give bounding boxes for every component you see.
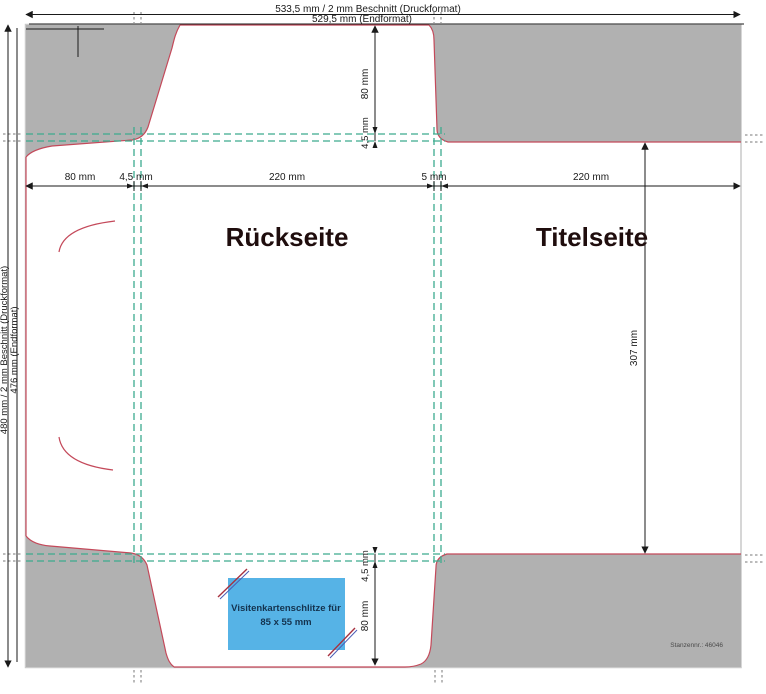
back-panel-title: Rückseite	[226, 222, 349, 252]
label-bottom-flap-crease: 4,5 mm	[360, 550, 371, 582]
waste-area-top-right	[429, 25, 741, 142]
die-template-drawing: 533,5 mm / 2 mm Beschnitt (Druckformat) …	[0, 0, 766, 694]
panel-titles: Rückseite Titelseite	[226, 222, 649, 252]
label-left-inner: 476 mm (Endformat)	[9, 306, 20, 393]
slot-label-line1: Visitenkartenschlitze für	[231, 603, 341, 614]
front-panel-title: Titelseite	[536, 222, 648, 252]
die-number-text: Stanzennr.: 46046	[670, 642, 723, 649]
label-width-220-right: 220 mm	[573, 172, 609, 183]
waste-area-bottom-right	[405, 554, 741, 667]
waste-area-top-left	[26, 25, 180, 157]
business-card-slot-area: Visitenkartenschlitze für 85 x 55 mm	[218, 569, 357, 658]
label-top-flap-height: 80 mm	[360, 69, 371, 100]
slot-label-line2: 85 x 55 mm	[260, 617, 311, 628]
cut-arc-left-bottom	[59, 437, 113, 470]
business-card-slot-box	[228, 578, 345, 650]
label-width-5: 5 mm	[422, 172, 447, 183]
label-width-4-5: 4,5 mm	[119, 172, 152, 183]
cut-arc-left-top	[59, 221, 115, 252]
waste-area-bottom-left	[26, 536, 174, 667]
label-width-80: 80 mm	[65, 172, 96, 183]
label-width-220-left: 220 mm	[269, 172, 305, 183]
ticks-bottom	[134, 670, 442, 684]
ticks-right	[745, 135, 763, 562]
label-top-inner: 529,5 mm (Endformat)	[312, 14, 412, 25]
label-panel-height: 307 mm	[629, 330, 640, 366]
label-top-flap-crease: 4,5 mm	[360, 117, 371, 149]
fold-lines	[26, 127, 445, 567]
template-canvas: 533,5 mm / 2 mm Beschnitt (Druckformat) …	[0, 0, 766, 694]
label-bottom-flap-height: 80 mm	[360, 601, 371, 632]
